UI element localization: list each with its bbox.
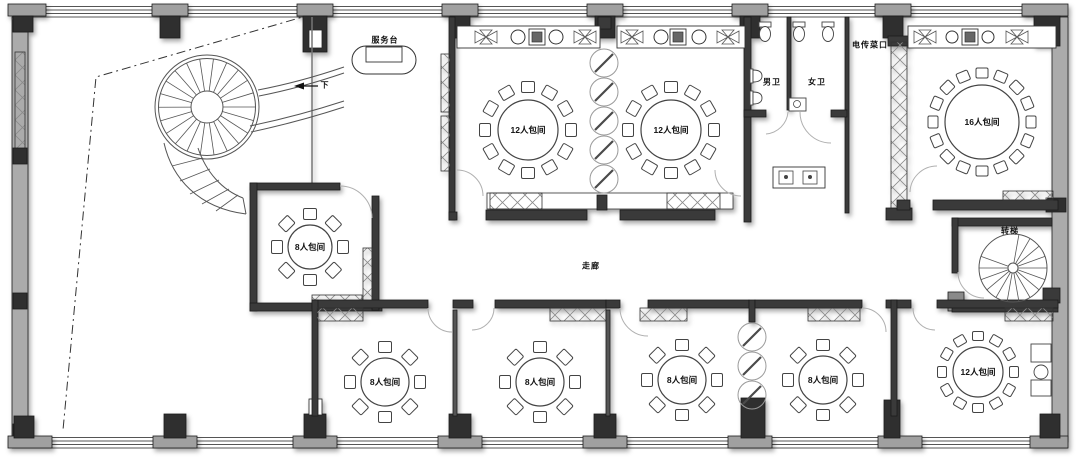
stair-tread: [166, 81, 193, 98]
chair: [338, 241, 349, 254]
chair: [401, 398, 418, 415]
tables-and-chairs: [272, 68, 1037, 423]
service-desk: [352, 46, 416, 74]
chair: [712, 374, 723, 387]
room-8-west-label: 8人包间: [295, 241, 325, 253]
dash-dot-line: [63, 14, 313, 430]
chair: [953, 397, 967, 410]
wash-basin-counter: [773, 167, 825, 188]
chair: [522, 82, 535, 93]
chair: [278, 262, 295, 279]
chair: [1009, 149, 1025, 165]
mens-toilet-label: 男卫: [763, 77, 781, 88]
chair: [953, 334, 967, 347]
room-12-south-label: 12人包间: [961, 366, 996, 378]
corridor-label: 走廊: [582, 261, 600, 272]
chair: [304, 275, 317, 286]
screen-partition-top: [590, 49, 618, 193]
stair-rail-lower: [250, 101, 344, 132]
chair: [272, 241, 283, 254]
chair: [570, 376, 581, 389]
chair: [839, 347, 856, 364]
chair: [623, 124, 634, 137]
chair: [379, 412, 392, 423]
chair: [626, 100, 642, 117]
chair: [940, 347, 953, 361]
chair: [642, 374, 653, 387]
chair: [783, 374, 794, 387]
chair: [665, 82, 678, 93]
chair: [956, 160, 971, 174]
chair: [500, 376, 511, 389]
chair: [989, 397, 1003, 410]
chair: [973, 332, 984, 341]
chair: [676, 340, 689, 351]
womens-toilet-label: 女卫: [808, 77, 826, 88]
chair: [352, 398, 369, 415]
screen-partition-south: [738, 323, 766, 409]
stair-tread: [214, 122, 228, 152]
spiral-staircase-east: [979, 234, 1047, 302]
stair-tread: [209, 123, 214, 155]
room-8-south-4-label: 8人包间: [808, 374, 838, 386]
chair: [1020, 133, 1034, 148]
stair-tread: [175, 119, 196, 144]
chair: [817, 340, 830, 351]
chair: [556, 349, 573, 366]
chair: [973, 404, 984, 413]
floor-plan: 服务台 下 男卫 女卫 电传菜口 走廊 转梯 12人包间12人包间16人包间8人…: [0, 0, 1080, 459]
chair: [940, 80, 956, 96]
down-label: 下: [321, 80, 330, 91]
stair-rail-upper: [258, 67, 344, 96]
room-16-label: 16人包间: [965, 116, 1000, 128]
chair: [556, 398, 573, 415]
chair: [379, 342, 392, 353]
stair-tread: [214, 63, 227, 93]
stair-tread: [1018, 256, 1045, 266]
cabinet-furniture: [1031, 344, 1051, 396]
stair-tread: [222, 111, 253, 120]
stair-tread: [217, 119, 238, 144]
chair: [649, 347, 666, 364]
chair: [665, 168, 678, 179]
chair: [817, 410, 830, 421]
chair: [940, 383, 953, 397]
right-exterior-wall: [1052, 17, 1068, 442]
chair: [989, 334, 1003, 347]
chair: [401, 349, 418, 366]
chair: [522, 168, 535, 179]
chair: [930, 133, 944, 148]
chair: [325, 262, 342, 279]
chair: [1003, 383, 1016, 397]
chair: [534, 412, 547, 423]
toilet-sink: [789, 98, 806, 111]
stair-tread: [217, 70, 238, 95]
stair-tread: [981, 270, 1008, 280]
stair-tread: [200, 59, 205, 91]
stair-tread: [220, 116, 247, 134]
down-arrow: [294, 83, 318, 90]
chair: [839, 396, 856, 413]
room-12-top-left-label: 12人包间: [511, 124, 546, 136]
chair: [541, 85, 558, 101]
chair: [507, 398, 524, 415]
chair: [928, 116, 938, 128]
stair-tread: [187, 122, 200, 152]
stair-tread: [981, 256, 1008, 266]
chair: [698, 396, 715, 413]
room-12-top-right-label: 12人包间: [654, 124, 689, 136]
chair: [993, 70, 1008, 84]
chair: [557, 143, 573, 160]
chair: [684, 159, 701, 175]
chair: [278, 215, 295, 232]
chair: [345, 376, 356, 389]
chair: [304, 209, 317, 220]
room-8-south-1-label: 8人包间: [370, 376, 400, 388]
chair: [1026, 116, 1036, 128]
service-desk-label: 服务台: [372, 35, 399, 46]
chair: [649, 396, 666, 413]
stair-tread: [1018, 270, 1045, 280]
chair: [853, 374, 864, 387]
chair: [698, 347, 715, 364]
chair: [557, 100, 573, 117]
chair: [541, 159, 558, 175]
chair: [930, 96, 944, 111]
room-8-south-3-label: 8人包间: [667, 374, 697, 386]
chair: [956, 70, 971, 84]
chair: [940, 149, 956, 165]
stair-tread: [187, 63, 201, 92]
chair: [790, 347, 807, 364]
chair: [415, 376, 426, 389]
room-8-south-2-label: 8人包间: [525, 376, 555, 388]
chair: [483, 100, 499, 117]
chair: [480, 124, 491, 137]
toilet-fixtures: [750, 22, 834, 111]
chair: [938, 367, 947, 378]
spiral-stair-label: 转梯: [1001, 226, 1019, 237]
stair-tread: [175, 71, 196, 95]
service-shaft-wall: [886, 36, 912, 220]
chair: [325, 215, 342, 232]
chair: [993, 160, 1008, 174]
chair: [641, 85, 658, 101]
room-16-walls: [897, 191, 1058, 210]
chair: [1020, 96, 1034, 111]
chair: [483, 143, 499, 160]
chair: [976, 68, 988, 78]
chair: [566, 124, 577, 137]
stair-tread: [200, 123, 205, 155]
chair: [700, 143, 716, 160]
chair: [507, 349, 524, 366]
chair: [700, 100, 716, 117]
chair: [626, 143, 642, 160]
chair: [684, 85, 701, 101]
chair: [498, 159, 515, 175]
stair-tread: [160, 94, 191, 103]
food-lift-label: 电传菜口: [852, 40, 888, 51]
chair: [709, 124, 720, 137]
chair: [641, 159, 658, 175]
chair: [352, 349, 369, 366]
chair: [1009, 80, 1025, 96]
chair: [1010, 367, 1019, 378]
stair-tread: [209, 59, 213, 91]
chair: [676, 410, 689, 421]
chair: [1003, 347, 1016, 361]
chair: [498, 85, 515, 101]
chair: [790, 396, 807, 413]
chair: [534, 342, 547, 353]
plan-drawing: [0, 0, 1080, 459]
chair: [976, 166, 988, 176]
